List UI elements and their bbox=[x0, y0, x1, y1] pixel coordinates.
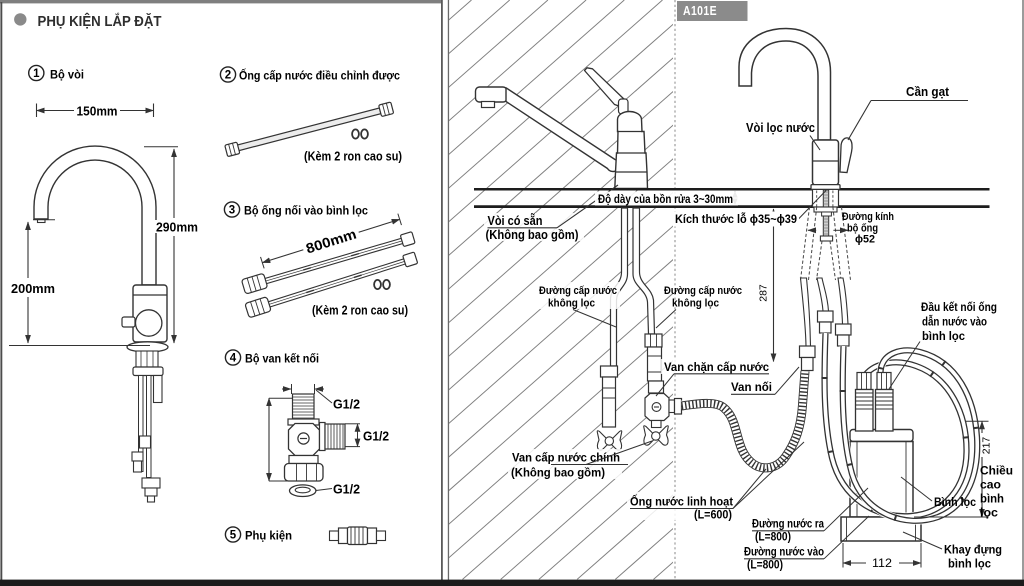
svg-text:Khay đựng: Khay đựng bbox=[944, 543, 1002, 557]
svg-text:Cần gạt: Cần gạt bbox=[906, 85, 950, 99]
svg-text:Bình lọc: Bình lọc bbox=[934, 495, 976, 509]
svg-text:287: 287 bbox=[758, 284, 770, 302]
svg-text:Đường kính: Đường kính bbox=[842, 211, 894, 223]
svg-text:Đường cấp nước: Đường cấp nước bbox=[664, 285, 742, 297]
svg-text:G1/2: G1/2 bbox=[363, 429, 389, 444]
svg-text:Ống nước linh hoạt: Ống nước linh hoạt bbox=[630, 494, 733, 509]
svg-text:3: 3 bbox=[229, 205, 235, 217]
svg-text:(L=800): (L=800) bbox=[755, 532, 791, 544]
svg-text:150mm: 150mm bbox=[77, 105, 118, 119]
svg-text:Ống cấp nước điều chỉnh được: Ống cấp nước điều chỉnh được bbox=[239, 68, 400, 83]
svg-text:2: 2 bbox=[225, 70, 231, 82]
svg-text:G1/2: G1/2 bbox=[333, 397, 360, 412]
svg-text:Van nối: Van nối bbox=[731, 380, 772, 394]
svg-text:lọc: lọc bbox=[980, 506, 998, 520]
svg-text:290mm: 290mm bbox=[156, 221, 198, 235]
svg-text:Bộ van kết nối: Bộ van kết nối bbox=[245, 352, 319, 366]
svg-text:Vòi có sẵn: Vòi có sẵn bbox=[488, 213, 543, 228]
svg-text:5: 5 bbox=[230, 530, 237, 542]
svg-text:Đường cấp nước: Đường cấp nước bbox=[539, 285, 617, 297]
svg-text:PHỤ KIỆN LẮP ĐẶT: PHỤ KIỆN LẮP ĐẶT bbox=[38, 12, 162, 30]
svg-text:(Không bao gồm): (Không bao gồm) bbox=[511, 466, 605, 480]
svg-text:Phụ kiện: Phụ kiện bbox=[245, 529, 292, 543]
svg-text:Đường nước ra: Đường nước ra bbox=[752, 517, 824, 531]
svg-text:cao: cao bbox=[980, 478, 1001, 492]
svg-text:4: 4 bbox=[230, 353, 237, 365]
svg-text:(Kèm 2 ron cao su): (Kèm 2 ron cao su) bbox=[312, 304, 408, 318]
svg-text:bình: bình bbox=[980, 492, 1004, 506]
svg-text:Bộ vòi: Bộ vòi bbox=[50, 68, 84, 82]
svg-text:bình lọc: bình lọc bbox=[922, 329, 965, 343]
svg-text:Van chặn cấp nước: Van chặn cấp nước bbox=[664, 360, 769, 374]
svg-text:A101E: A101E bbox=[683, 3, 717, 18]
svg-text:Chiều: Chiều bbox=[980, 464, 1013, 478]
svg-text:1: 1 bbox=[33, 68, 40, 80]
svg-text:Vòi lọc nước: Vòi lọc nước bbox=[746, 121, 815, 135]
svg-text:(Kèm 2 ron cao su): (Kèm 2 ron cao su) bbox=[304, 150, 402, 164]
svg-text:bình lọc: bình lọc bbox=[948, 557, 991, 571]
svg-text:112: 112 bbox=[872, 558, 892, 570]
svg-text:Van cấp nước chính: Van cấp nước chính bbox=[512, 451, 620, 465]
svg-text:(L=800): (L=800) bbox=[747, 560, 783, 572]
svg-text:217: 217 bbox=[981, 437, 993, 455]
svg-text:(L=600): (L=600) bbox=[694, 510, 732, 522]
svg-text:Đầu kết nối ống: Đầu kết nối ống bbox=[921, 300, 997, 314]
svg-text:dẫn nước vào: dẫn nước vào bbox=[922, 314, 987, 329]
svg-text:Kích thước lỗ ϕ35~ϕ39: Kích thước lỗ ϕ35~ϕ39 bbox=[675, 211, 797, 226]
svg-text:200mm: 200mm bbox=[11, 282, 55, 296]
svg-text:(Không bao gồm): (Không bao gồm) bbox=[486, 228, 579, 242]
svg-text:Độ dày của bồn rửa 3~30mm: Độ dày của bồn rửa 3~30mm bbox=[598, 192, 733, 206]
svg-text:không lọc: không lọc bbox=[672, 298, 719, 310]
svg-text:G1/2: G1/2 bbox=[333, 482, 360, 497]
svg-text:ϕ52: ϕ52 bbox=[855, 234, 875, 246]
svg-text:Bộ ống nối vào bình lọc: Bộ ống nối vào bình lọc bbox=[244, 204, 368, 218]
svg-text:Đường nước vào: Đường nước vào bbox=[744, 545, 824, 559]
svg-text:không lọc: không lọc bbox=[548, 298, 595, 310]
